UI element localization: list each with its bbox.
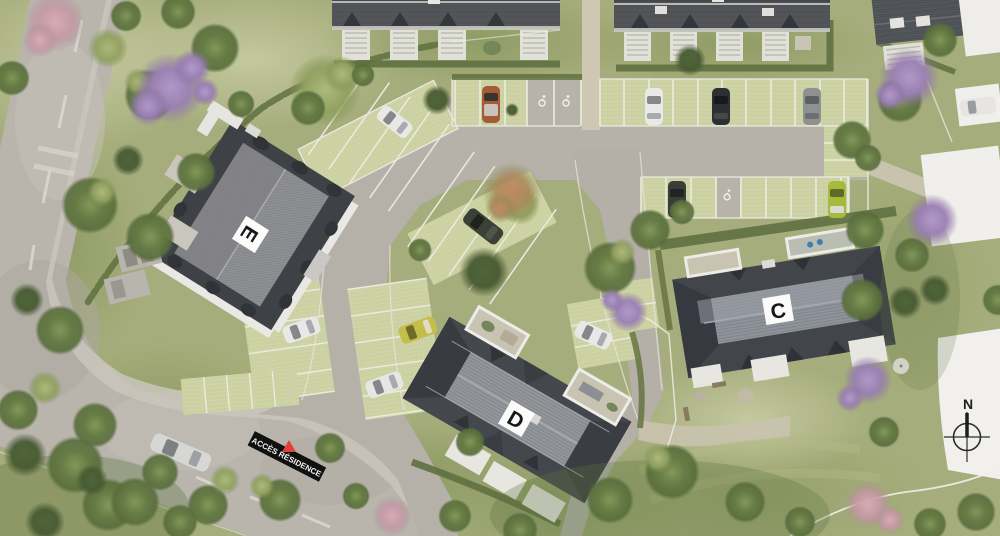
svg-text:N: N — [963, 396, 973, 412]
